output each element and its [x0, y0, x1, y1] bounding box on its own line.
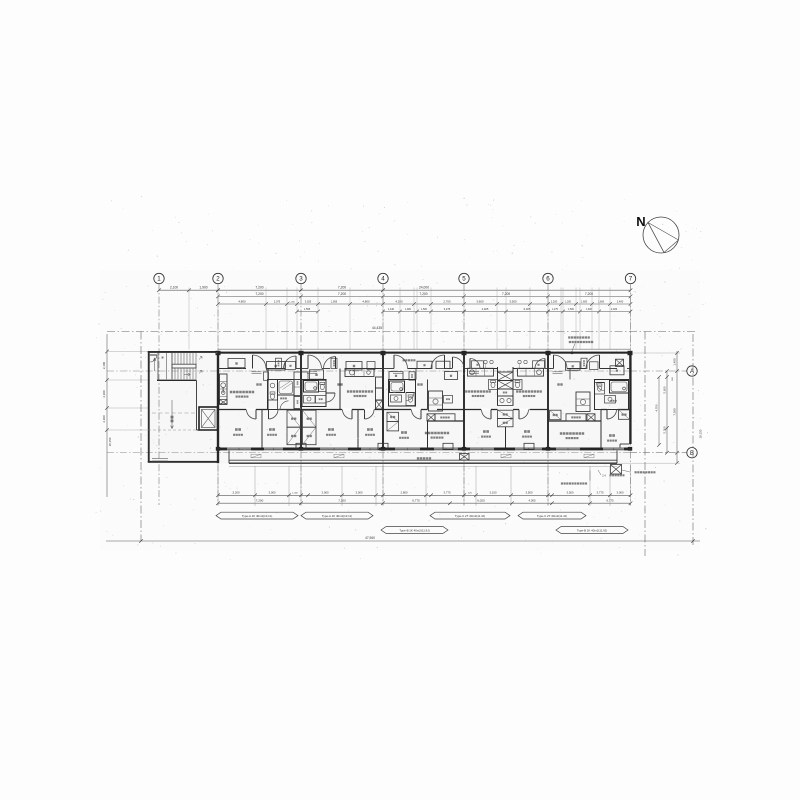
svg-text:7,200: 7,200 — [255, 286, 263, 290]
svg-text:N: N — [636, 214, 645, 229]
svg-text:1: 1 — [157, 276, 161, 283]
svg-text:3,000: 3,000 — [356, 491, 363, 495]
svg-text:3,600: 3,600 — [476, 299, 484, 303]
svg-text:B: B — [690, 451, 694, 457]
svg-text:4,925: 4,925 — [482, 307, 489, 311]
svg-text:7,200: 7,200 — [255, 292, 263, 296]
svg-text:3: 3 — [299, 276, 303, 283]
svg-text:1,600: 1,600 — [581, 300, 588, 303]
svg-text:5,600: 5,600 — [663, 386, 667, 393]
svg-text:Type-B 1K 40m2(11.9J): Type-B 1K 40m2(11.9J) — [577, 529, 607, 533]
svg-text:4,800: 4,800 — [362, 299, 370, 303]
svg-text:1,440: 1,440 — [388, 308, 395, 311]
svg-text:2,300: 2,300 — [102, 390, 106, 398]
svg-text:1,565: 1,565 — [304, 308, 311, 311]
svg-text:3,025: 3,025 — [305, 299, 312, 303]
svg-text:6,775: 6,775 — [412, 499, 420, 503]
svg-text:3,000: 3,000 — [269, 491, 276, 495]
svg-text:7: 7 — [629, 276, 633, 283]
svg-text:3,500: 3,500 — [567, 491, 574, 495]
svg-text:3,000: 3,000 — [322, 491, 329, 495]
svg-text:1,500: 1,500 — [421, 308, 428, 311]
svg-text:18,150: 18,150 — [699, 429, 703, 438]
svg-text:Type-B 1K 40m2(11.9J): Type-B 1K 40m2(11.9J) — [399, 529, 429, 533]
svg-text:2,075: 2,075 — [274, 300, 281, 303]
svg-text:7,200: 7,200 — [338, 292, 346, 296]
svg-text:3,000: 3,000 — [617, 491, 624, 495]
svg-text:2: 2 — [216, 276, 220, 283]
svg-text:7,200: 7,200 — [256, 499, 264, 503]
svg-text:Type-C 2T 40m2(11.4J): Type-C 2T 40m2(11.4J) — [537, 514, 567, 518]
svg-text:1,400: 1,400 — [672, 358, 676, 366]
svg-text:47,960: 47,960 — [365, 536, 375, 540]
svg-text:7,300: 7,300 — [672, 408, 676, 416]
svg-text:A: A — [690, 369, 694, 375]
svg-text:1,900: 1,900 — [199, 286, 207, 290]
svg-text:2,4: 2,4 — [602, 474, 606, 477]
svg-text:3,775: 3,775 — [597, 491, 604, 495]
svg-text:4,700: 4,700 — [655, 404, 659, 411]
svg-text:4: 4 — [381, 276, 385, 283]
svg-text:4,005: 4,005 — [529, 499, 536, 503]
svg-text:1,565: 1,565 — [331, 300, 338, 303]
svg-text:6,025: 6,025 — [524, 307, 531, 311]
svg-text:Type-A 1K 40m2(13.1J): Type-A 1K 40m2(13.1J) — [322, 514, 352, 518]
svg-text:2,400: 2,400 — [102, 361, 106, 369]
svg-text:1,000: 1,000 — [292, 493, 298, 495]
svg-text:3,500: 3,500 — [509, 299, 517, 303]
svg-text:24,000: 24,000 — [419, 286, 429, 290]
svg-text:4,800: 4,800 — [238, 299, 246, 303]
svg-text:2,800: 2,800 — [401, 491, 408, 495]
svg-text:7,200: 7,200 — [338, 286, 346, 290]
svg-text:6: 6 — [546, 276, 550, 283]
svg-text:2,200: 2,200 — [551, 299, 558, 303]
svg-text:2,400: 2,400 — [611, 308, 618, 311]
svg-text:18,150: 18,150 — [108, 437, 112, 446]
svg-text:1,275: 1,275 — [552, 309, 558, 311]
svg-text:3,200: 3,200 — [233, 491, 240, 495]
svg-text:6,025: 6,025 — [477, 499, 485, 503]
svg-text:4,200: 4,200 — [395, 299, 403, 303]
svg-text:3,775: 3,775 — [444, 491, 451, 495]
svg-text:1,600: 1,600 — [586, 309, 592, 311]
svg-text:2,400: 2,400 — [617, 299, 624, 303]
svg-text:1,000: 1,000 — [289, 301, 295, 303]
svg-text:2,300: 2,300 — [102, 415, 106, 423]
svg-text:1,900: 1,900 — [405, 308, 412, 311]
svg-text:6,775: 6,775 — [607, 499, 614, 503]
svg-text:1,200: 1,200 — [565, 300, 572, 303]
svg-text:3,100: 3,100 — [490, 491, 497, 495]
svg-text:1,500: 1,500 — [568, 309, 574, 311]
svg-text:44,435: 44,435 — [372, 326, 382, 330]
svg-text:3,275: 3,275 — [444, 307, 451, 311]
svg-text:Type-C 2T 40m2(11.4J): Type-C 2T 40m2(11.4J) — [455, 514, 485, 518]
svg-text:5: 5 — [462, 276, 466, 283]
svg-text:5,300: 5,300 — [663, 426, 667, 433]
svg-text:3,500: 3,500 — [526, 491, 533, 495]
svg-text:Type-A 1K 40m2(13.1J): Type-A 1K 40m2(13.1J) — [242, 514, 272, 518]
svg-text:2,100: 2,100 — [170, 286, 178, 290]
svg-text:2,700: 2,700 — [443, 299, 451, 303]
